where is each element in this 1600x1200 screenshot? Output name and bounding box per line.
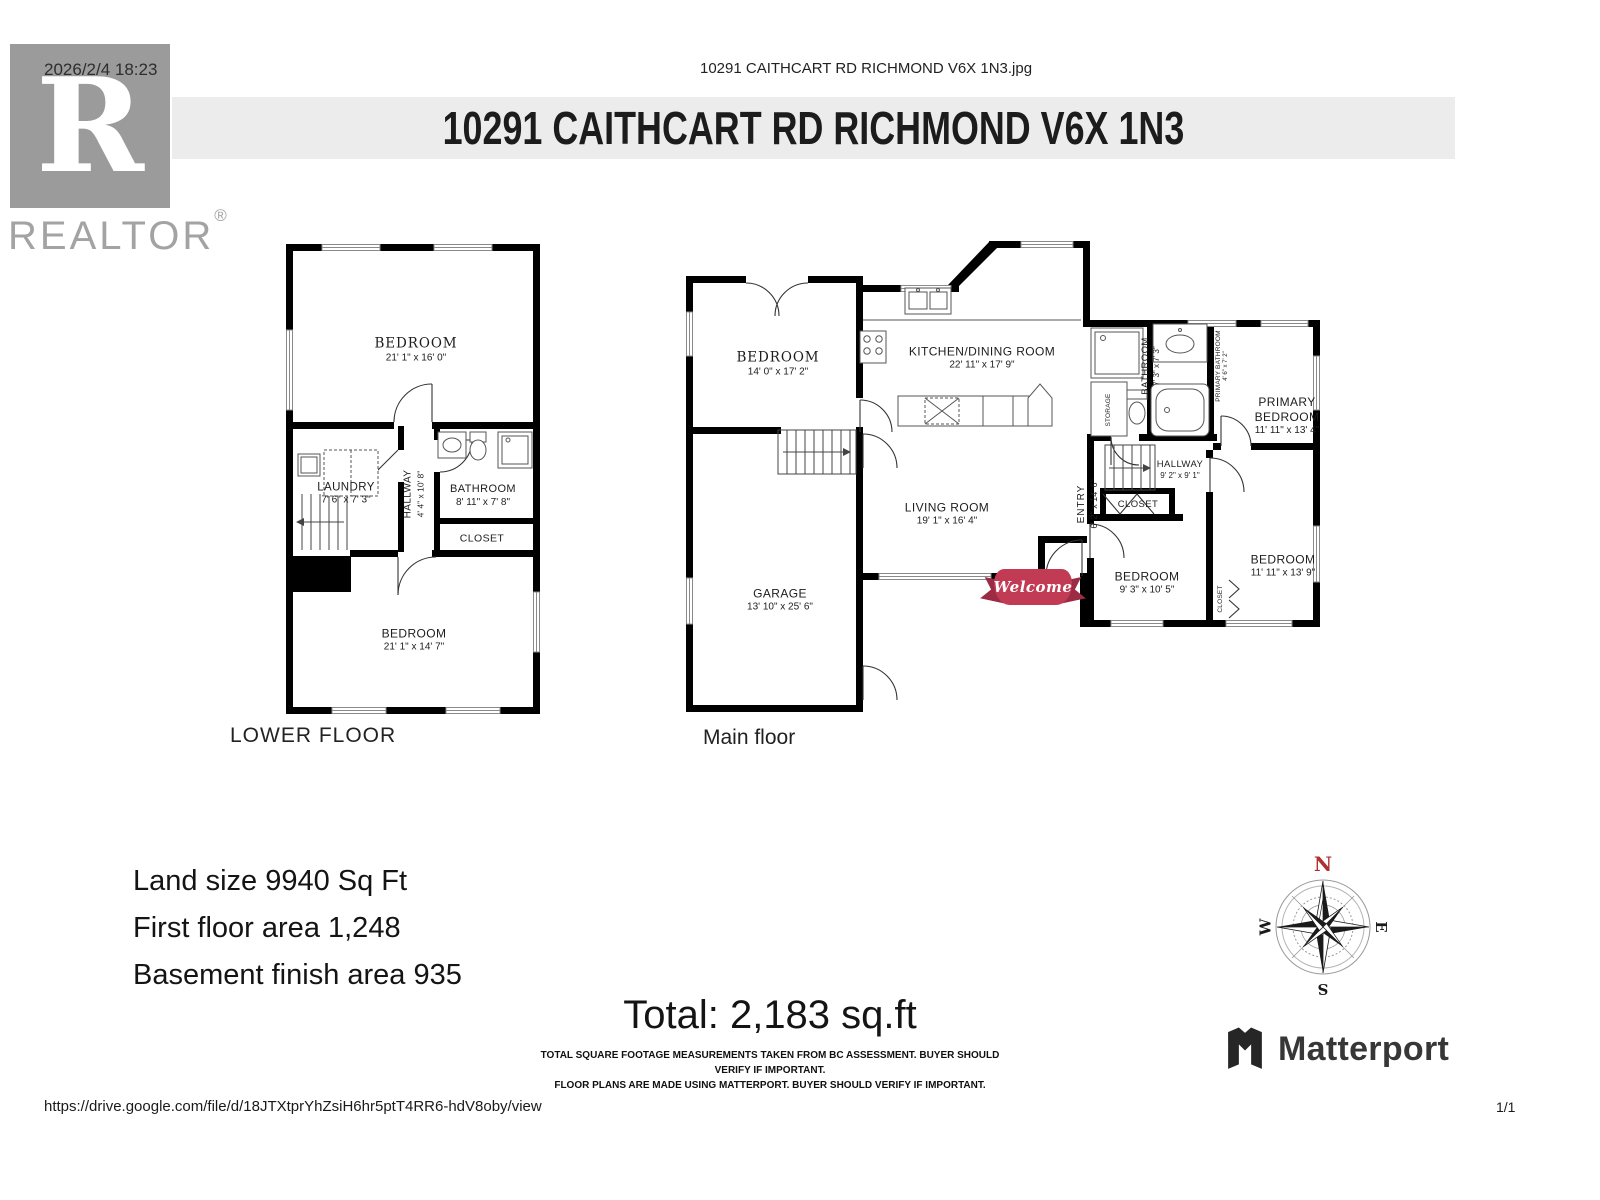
room-label-primary-bathroom: PRIMARY BATHROOM 4' 6" x 7' 2" xyxy=(1215,330,1231,401)
first-floor-area: First floor area 1,248 xyxy=(133,905,462,952)
disclaimer: TOTAL SQUARE FOOTAGE MEASUREMENTS TAKEN … xyxy=(530,1048,1010,1093)
realtor-word-text: REALTOR xyxy=(8,214,214,258)
room-name: GARAGE xyxy=(747,586,813,601)
room-name: KITCHEN/DINING ROOM xyxy=(909,344,1055,359)
room-dims: 22' 11" x 17' 9" xyxy=(909,359,1055,372)
room-name: STORAGE xyxy=(1105,393,1113,426)
room-name: HALLWAY xyxy=(402,470,415,519)
room-name: BEDROOM xyxy=(736,349,819,366)
room-name: LIVING ROOM xyxy=(905,500,989,515)
compass-south-label: S xyxy=(1318,980,1329,998)
matterport-icon xyxy=(1222,1026,1268,1072)
room-label-lower-bathroom: BATHROOM 8' 11" x 7' 8" xyxy=(450,483,516,509)
room-dims: 19' 1" x 16' 4" xyxy=(905,515,989,528)
basement-area: Basement finish area 935 xyxy=(133,952,462,999)
realtor-wordmark: REALTOR® xyxy=(8,206,230,259)
compass-rose-icon: N E S W xyxy=(1256,843,1390,1003)
room-label-kitchen-dining: KITCHEN/DINING ROOM 22' 11" x 17' 9" xyxy=(909,344,1055,372)
compass-east-label: E xyxy=(1372,921,1390,932)
room-label-main-bedroom: BEDROOM 14' 0" x 17' 2" xyxy=(736,349,819,378)
room-dims: 11' 11" x 13' 4" xyxy=(1248,425,1326,438)
realtor-logo-r: R xyxy=(36,61,144,191)
disclaimer-line-2: FLOOR PLANS ARE MADE USING MATTERPORT. B… xyxy=(530,1078,1010,1093)
room-label-garage: GARAGE 13' 10" x 25' 6" xyxy=(747,586,813,614)
room-label-small-closet: CLOSET xyxy=(1217,585,1225,612)
room-dims: 8' 11" x 7' 8" xyxy=(450,497,516,510)
room-label-lower-bedroom-1: BEDROOM 21' 1" x 16' 0" xyxy=(374,335,457,364)
room-name: ENTRY xyxy=(1076,479,1089,528)
room-name: HALLWAY xyxy=(1157,459,1203,471)
registered-mark: ® xyxy=(214,206,230,225)
lower-floor-plan: BEDROOM 21' 1" x 16' 0" LAUNDRY 7' 6" x … xyxy=(286,244,540,714)
page-title: 10291 CAITHCART RD RICHMOND V6X 1N3 xyxy=(443,101,1185,155)
room-label-primary-bedroom: PRIMARY BEDROOM 11' 11" x 13' 4" xyxy=(1248,395,1326,438)
room-dims: 9' 2" x 9' 1" xyxy=(1157,471,1203,481)
room-label-entry: ENTRY 6' 2" x 14' 6" xyxy=(1076,479,1100,528)
room-dims: 4' 6" x 7' 2" xyxy=(1223,330,1231,401)
room-dims: 6' 2" x 14' 6" xyxy=(1089,479,1100,528)
main-floor-plan: BEDROOM 14' 0" x 17' 2" KITCHEN/DINING R… xyxy=(683,228,1323,722)
room-dims: 21' 1" x 14' 7" xyxy=(382,641,447,654)
print-filename: 10291 CAITHCART RD RICHMOND V6X 1N3.jpg xyxy=(700,60,1032,77)
room-label-lower-closet: CLOSET xyxy=(460,532,504,545)
room-name: BEDROOM xyxy=(382,626,447,641)
room-label-hall-closet: CLOSET xyxy=(1118,499,1158,511)
room-name: PRIMARY BEDROOM xyxy=(1248,395,1326,425)
lower-floor-caption: LOWER FLOOR xyxy=(230,724,396,748)
room-label-bedroom-right: BEDROOM 11' 11" x 13' 9" xyxy=(1251,552,1316,580)
room-dims: 4' 4" x 10' 8" xyxy=(415,470,426,519)
room-dims: 21' 1" x 16' 0" xyxy=(374,352,457,365)
land-size: Land size 9940 Sq Ft xyxy=(133,858,462,905)
room-label-lower-bedroom-2: BEDROOM 21' 1" x 14' 7" xyxy=(382,626,447,654)
room-label-lower-hallway: HALLWAY 4' 4" x 10' 8" xyxy=(402,470,425,519)
room-label-living-room: LIVING ROOM 19' 1" x 16' 4" xyxy=(905,500,989,528)
compass-west-label: W xyxy=(1256,917,1274,936)
area-summary: Land size 9940 Sq Ft First floor area 1,… xyxy=(133,858,462,999)
room-label-bedroom-small: BEDROOM 9' 3" x 10' 5" xyxy=(1115,569,1180,597)
room-label-main-bathroom: BATHROOM 7' 3" x 7' 3" xyxy=(1140,337,1162,394)
welcome-text: Welcome xyxy=(994,578,1073,596)
welcome-ribbon: Welcome xyxy=(985,566,1081,612)
room-dims: 14' 0" x 17' 2" xyxy=(736,366,819,379)
room-name: BEDROOM xyxy=(374,335,457,352)
total-area: Total: 2,183 sq.ft xyxy=(540,993,1000,1038)
room-label-laundry: LAUNDRY 7' 6" x 7' 3" xyxy=(317,481,375,508)
page-indicator: 1/1 xyxy=(1496,1099,1515,1115)
matterport-label: Matterport xyxy=(1278,1030,1449,1069)
room-name: BATHROOM xyxy=(450,483,516,497)
timestamp: 2026/2/4 18:23 xyxy=(44,60,157,80)
room-dims: 9' 3" x 10' 5" xyxy=(1115,584,1180,597)
room-name: CLOSET xyxy=(1217,585,1225,612)
room-name: LAUNDRY xyxy=(317,481,375,495)
room-name: BATHROOM xyxy=(1140,337,1152,394)
matterport-logo: Matterport xyxy=(1222,1026,1449,1072)
ribbon-band: Welcome xyxy=(994,569,1072,605)
room-name: BEDROOM xyxy=(1115,569,1180,584)
room-name: PRIMARY BATHROOM xyxy=(1215,330,1223,401)
room-name: BEDROOM xyxy=(1251,552,1316,567)
room-dims: 11' 11" x 13' 9" xyxy=(1251,567,1316,580)
source-url: https://drive.google.com/file/d/18JTXtpr… xyxy=(44,1098,542,1115)
main-floor-caption: Main floor xyxy=(703,726,795,750)
room-dims: 7' 6" x 7' 3" xyxy=(317,495,375,508)
disclaimer-line-1: TOTAL SQUARE FOOTAGE MEASUREMENTS TAKEN … xyxy=(530,1048,1010,1078)
room-name: CLOSET xyxy=(1118,499,1158,511)
room-label-storage: STORAGE xyxy=(1105,393,1113,426)
room-name: CLOSET xyxy=(460,532,504,545)
room-dims: 13' 10" x 25' 6" xyxy=(747,601,813,614)
main-floor-drawing xyxy=(683,228,1323,722)
compass-north-label: N xyxy=(1314,852,1332,876)
address-title-bar: 10291 CAITHCART RD RICHMOND V6X 1N3 xyxy=(172,97,1455,159)
room-dims: 7' 3" x 7' 3" xyxy=(1152,337,1162,394)
room-label-main-hallway: HALLWAY 9' 2" x 9' 1" xyxy=(1157,459,1203,481)
